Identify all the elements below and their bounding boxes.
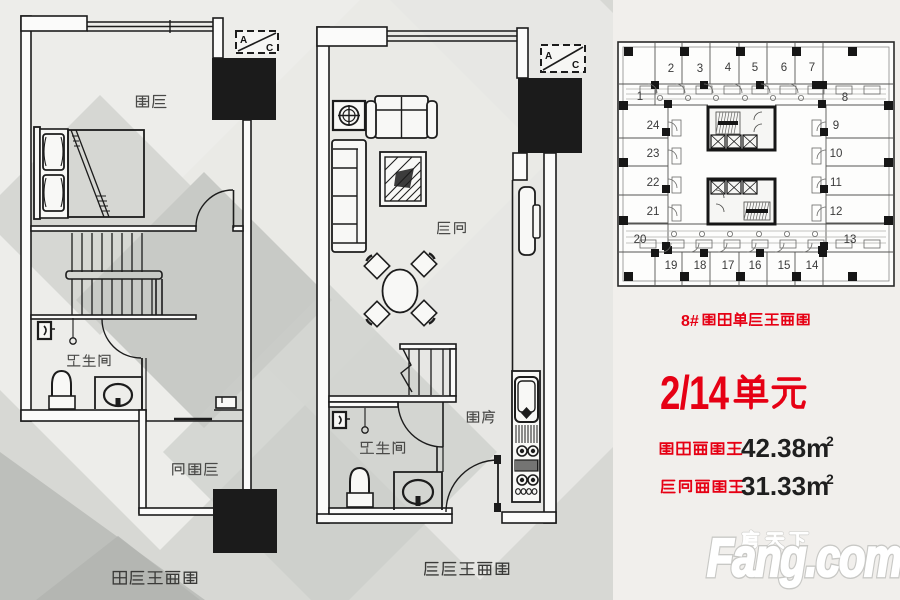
svg-text:12: 12 — [830, 206, 843, 218]
svg-text:19: 19 — [665, 260, 678, 272]
svg-text:15: 15 — [778, 260, 791, 272]
svg-text:A: A — [545, 51, 552, 62]
svg-text:21: 21 — [647, 206, 660, 218]
svg-text:8#: 8# — [681, 313, 699, 330]
svg-text:2: 2 — [826, 433, 834, 449]
svg-text:6: 6 — [781, 62, 787, 74]
svg-text:31.33m: 31.33m — [741, 471, 829, 501]
svg-text:14: 14 — [806, 260, 819, 272]
svg-text:5: 5 — [752, 62, 758, 74]
svg-text:11: 11 — [830, 177, 842, 189]
svg-text:C: C — [266, 43, 273, 54]
svg-text:42.38m: 42.38m — [741, 433, 829, 463]
svg-text:Fang.com: Fang.com — [707, 529, 900, 589]
svg-text:3: 3 — [697, 63, 703, 75]
svg-text:2/14: 2/14 — [660, 367, 729, 419]
svg-text:17: 17 — [722, 260, 735, 272]
svg-text:4: 4 — [725, 62, 732, 74]
svg-text:10: 10 — [830, 148, 843, 160]
svg-text:24: 24 — [647, 120, 660, 132]
svg-text:16: 16 — [749, 260, 762, 272]
svg-text:18: 18 — [694, 260, 707, 272]
svg-text:23: 23 — [647, 148, 660, 160]
svg-text:8: 8 — [842, 92, 848, 104]
svg-text:2: 2 — [668, 63, 674, 75]
svg-text:22: 22 — [647, 177, 660, 189]
svg-text:A: A — [240, 35, 247, 46]
svg-text:9: 9 — [833, 120, 839, 132]
svg-text:20: 20 — [634, 234, 647, 246]
svg-text:7: 7 — [809, 62, 815, 74]
svg-text:13: 13 — [844, 234, 857, 246]
svg-text:C: C — [572, 60, 579, 71]
svg-text:1: 1 — [637, 91, 643, 103]
svg-text:2: 2 — [826, 471, 834, 487]
